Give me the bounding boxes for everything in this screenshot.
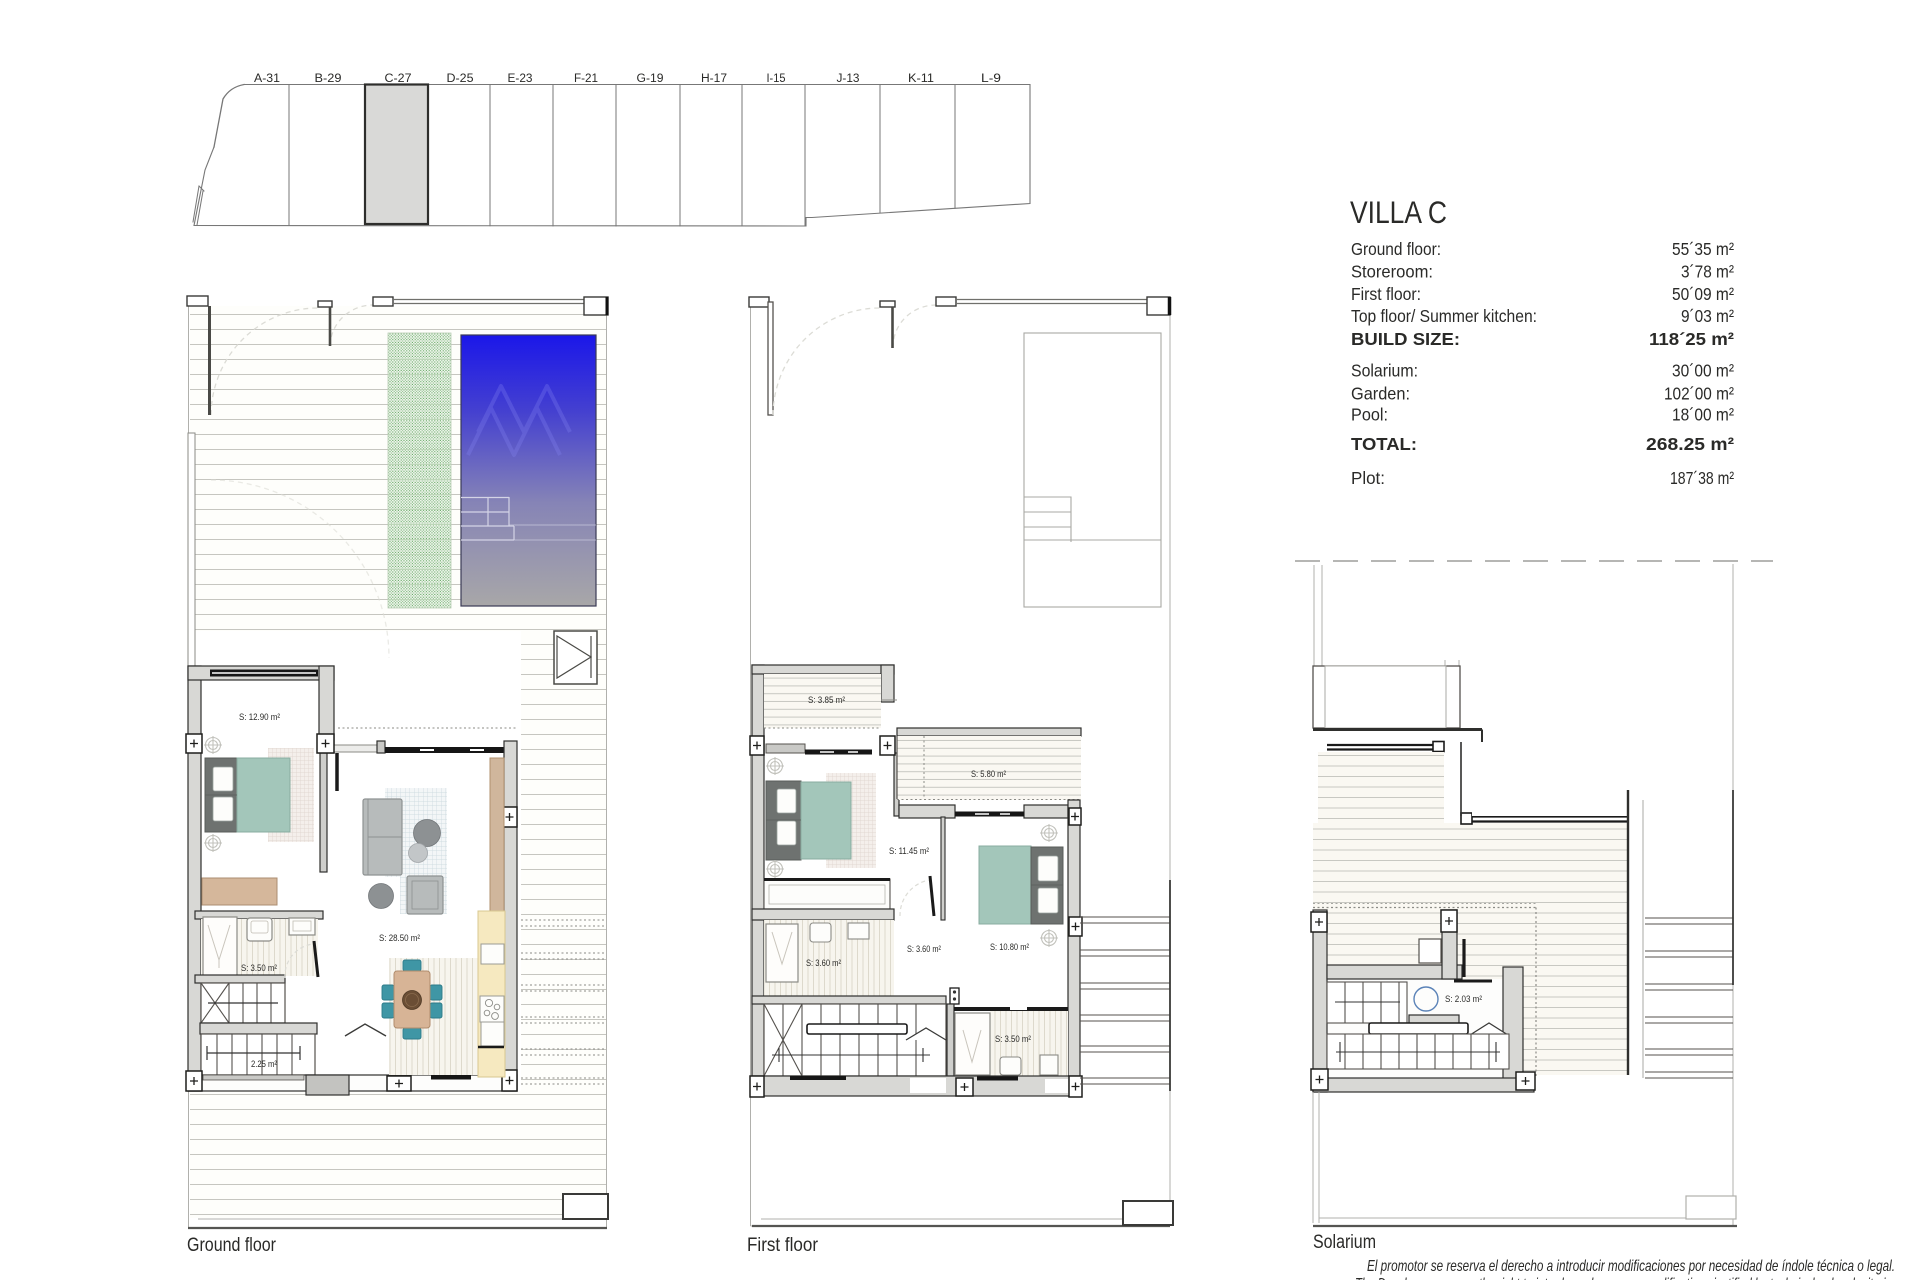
svg-text:18´00 m²: 18´00 m² bbox=[1672, 405, 1734, 425]
svg-text:E-23: E-23 bbox=[508, 73, 533, 85]
svg-text:187´38 m²: 187´38 m² bbox=[1670, 468, 1734, 488]
svg-text:S: 10.80 m²: S: 10.80 m² bbox=[990, 942, 1029, 953]
svg-text:3´78 m²: 3´78 m² bbox=[1681, 262, 1734, 282]
svg-text:K-11: K-11 bbox=[908, 73, 934, 85]
svg-text:C-27: C-27 bbox=[385, 73, 412, 85]
svg-text:A-31: A-31 bbox=[254, 73, 280, 85]
svg-text:First floor:: First floor: bbox=[1351, 284, 1421, 304]
svg-text:50´09 m²: 50´09 m² bbox=[1672, 284, 1734, 304]
svg-text:55´35 m²: 55´35 m² bbox=[1672, 239, 1734, 259]
svg-text:S: 5.80 m²: S: 5.80 m² bbox=[971, 769, 1006, 780]
svg-text:VILLA C: VILLA C bbox=[1350, 194, 1447, 230]
svg-text:S: 3.85 m²: S: 3.85 m² bbox=[808, 695, 845, 706]
svg-text:H-17: H-17 bbox=[701, 73, 727, 85]
svg-text:B-29: B-29 bbox=[315, 73, 342, 85]
svg-text:L-9: L-9 bbox=[981, 73, 1001, 85]
svg-text:First floor: First floor bbox=[747, 1235, 819, 1256]
svg-text:Pool:: Pool: bbox=[1351, 405, 1388, 425]
svg-text:The Developer reserves the rig: The Developer reserves the right to intr… bbox=[1355, 1276, 1895, 1280]
svg-text:Ground floor: Ground floor bbox=[187, 1235, 277, 1256]
svg-text:S: 3.50 m²: S: 3.50 m² bbox=[241, 963, 277, 974]
svg-text:S: 28.50 m²: S: 28.50 m² bbox=[379, 933, 420, 944]
svg-text:268.25 m²: 268.25 m² bbox=[1646, 434, 1734, 454]
svg-text:S: 11.45 m²: S: 11.45 m² bbox=[889, 846, 929, 857]
svg-text:G-19: G-19 bbox=[637, 73, 664, 85]
svg-text:Top floor/ Summer kitchen:: Top floor/ Summer kitchen: bbox=[1351, 306, 1537, 326]
svg-text:I-15: I-15 bbox=[767, 73, 786, 85]
svg-text:BUILD SIZE:: BUILD SIZE: bbox=[1351, 329, 1460, 349]
svg-text:Storeroom:: Storeroom: bbox=[1351, 262, 1433, 282]
svg-text:F-21: F-21 bbox=[574, 73, 598, 85]
svg-text:S: 3.60 m²: S: 3.60 m² bbox=[907, 944, 941, 955]
svg-text:30´00 m²: 30´00 m² bbox=[1672, 361, 1734, 381]
svg-text:Plot:: Plot: bbox=[1351, 468, 1385, 488]
svg-text:D-25: D-25 bbox=[447, 73, 474, 85]
svg-text:S: 3.60 m²: S: 3.60 m² bbox=[806, 958, 841, 969]
svg-text:S: 2.03 m²: S: 2.03 m² bbox=[1445, 994, 1482, 1005]
svg-text:118´25 m²: 118´25 m² bbox=[1649, 329, 1734, 349]
svg-text:Solarium: Solarium bbox=[1313, 1232, 1376, 1253]
svg-text:2.25 m²: 2.25 m² bbox=[251, 1059, 277, 1070]
svg-text:9´03 m²: 9´03 m² bbox=[1681, 306, 1734, 326]
svg-text:J-13: J-13 bbox=[837, 73, 860, 85]
svg-text:Ground floor:: Ground floor: bbox=[1351, 239, 1441, 259]
svg-text:Garden:: Garden: bbox=[1351, 384, 1410, 404]
svg-text:S: 3.50 m²: S: 3.50 m² bbox=[995, 1034, 1031, 1045]
svg-text:Solarium:: Solarium: bbox=[1351, 361, 1418, 381]
svg-text:S: 12.90 m²: S: 12.90 m² bbox=[239, 712, 280, 723]
svg-text:TOTAL:: TOTAL: bbox=[1351, 434, 1417, 454]
svg-text:102´00 m²: 102´00 m² bbox=[1664, 384, 1734, 404]
svg-text:El promotor se reserva el dere: El promotor se reserva el derecho a intr… bbox=[1367, 1258, 1895, 1275]
